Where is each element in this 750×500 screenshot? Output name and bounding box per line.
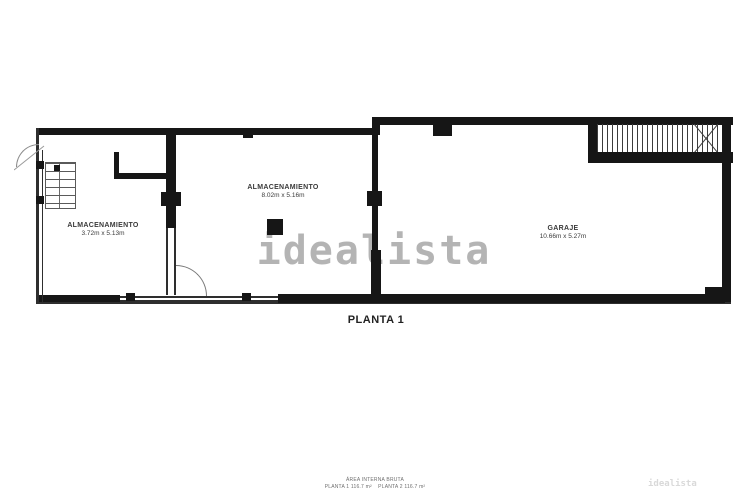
wall-bottom-jamb-1 [126,293,135,301]
room-label-garaje: GARAJE 10.66m x 5.27m [540,224,587,242]
floorplan-canvas: idealista ALMAC [0,0,750,500]
watermark-idealista-small: idealista [648,479,697,489]
wall-left-inner-line [42,150,43,303]
wall-left-jamb-2 [36,196,44,204]
wall-bottom-jamb-2 [242,293,251,301]
footer-plantas-line: PLANTA 1 116.7 m² PLANTA 2 116.7 m² [325,484,426,490]
plan-title: PLANTA 1 [348,313,405,328]
stairs-break-cross [694,124,718,153]
partition-middle-garage-pillar [367,191,382,206]
room-dims: 10.66m x 5.27m [540,233,587,242]
room-name: ALMACENAMIENTO [67,221,138,230]
wall-bottom-window-inner [120,300,280,302]
column-middle-room [267,219,283,235]
partition-left-middle-pillar [161,192,181,206]
partition-middle-garage-lower [371,250,381,297]
room-dims: 3.72m x 5.13m [67,230,138,239]
room-label-almacenamiento-2: ALMACENAMIENTO 8.02m x 5.16m [247,183,318,201]
stairs-top-left-wall [588,124,597,154]
wall-right [722,117,731,304]
stairs-winder-post [54,165,60,171]
stairs-cut-line [14,142,46,172]
interior-door-arc [176,265,207,296]
stairs-winder [45,162,76,209]
footer-area-line: ÁREA INTERNA BRUTA [346,477,404,483]
column-garage-top [433,124,452,136]
wall-top-tick [243,133,253,138]
room-label-almacenamiento-1: ALMACENAMIENTO 3.72m x 5.13m [67,221,138,239]
wall-bottom-thick-right [278,294,725,303]
wall-bottom-window-outer [120,296,280,298]
room-dims: 8.02m x 5.16m [247,192,318,201]
closet-wall-horizontal [114,173,171,179]
wall-top-left-section [36,128,377,135]
room-name: ALMACENAMIENTO [247,183,318,192]
door-frame-left-line [166,228,168,295]
stairs-bottom-wall [588,152,733,163]
room-name: GARAJE [540,224,587,233]
